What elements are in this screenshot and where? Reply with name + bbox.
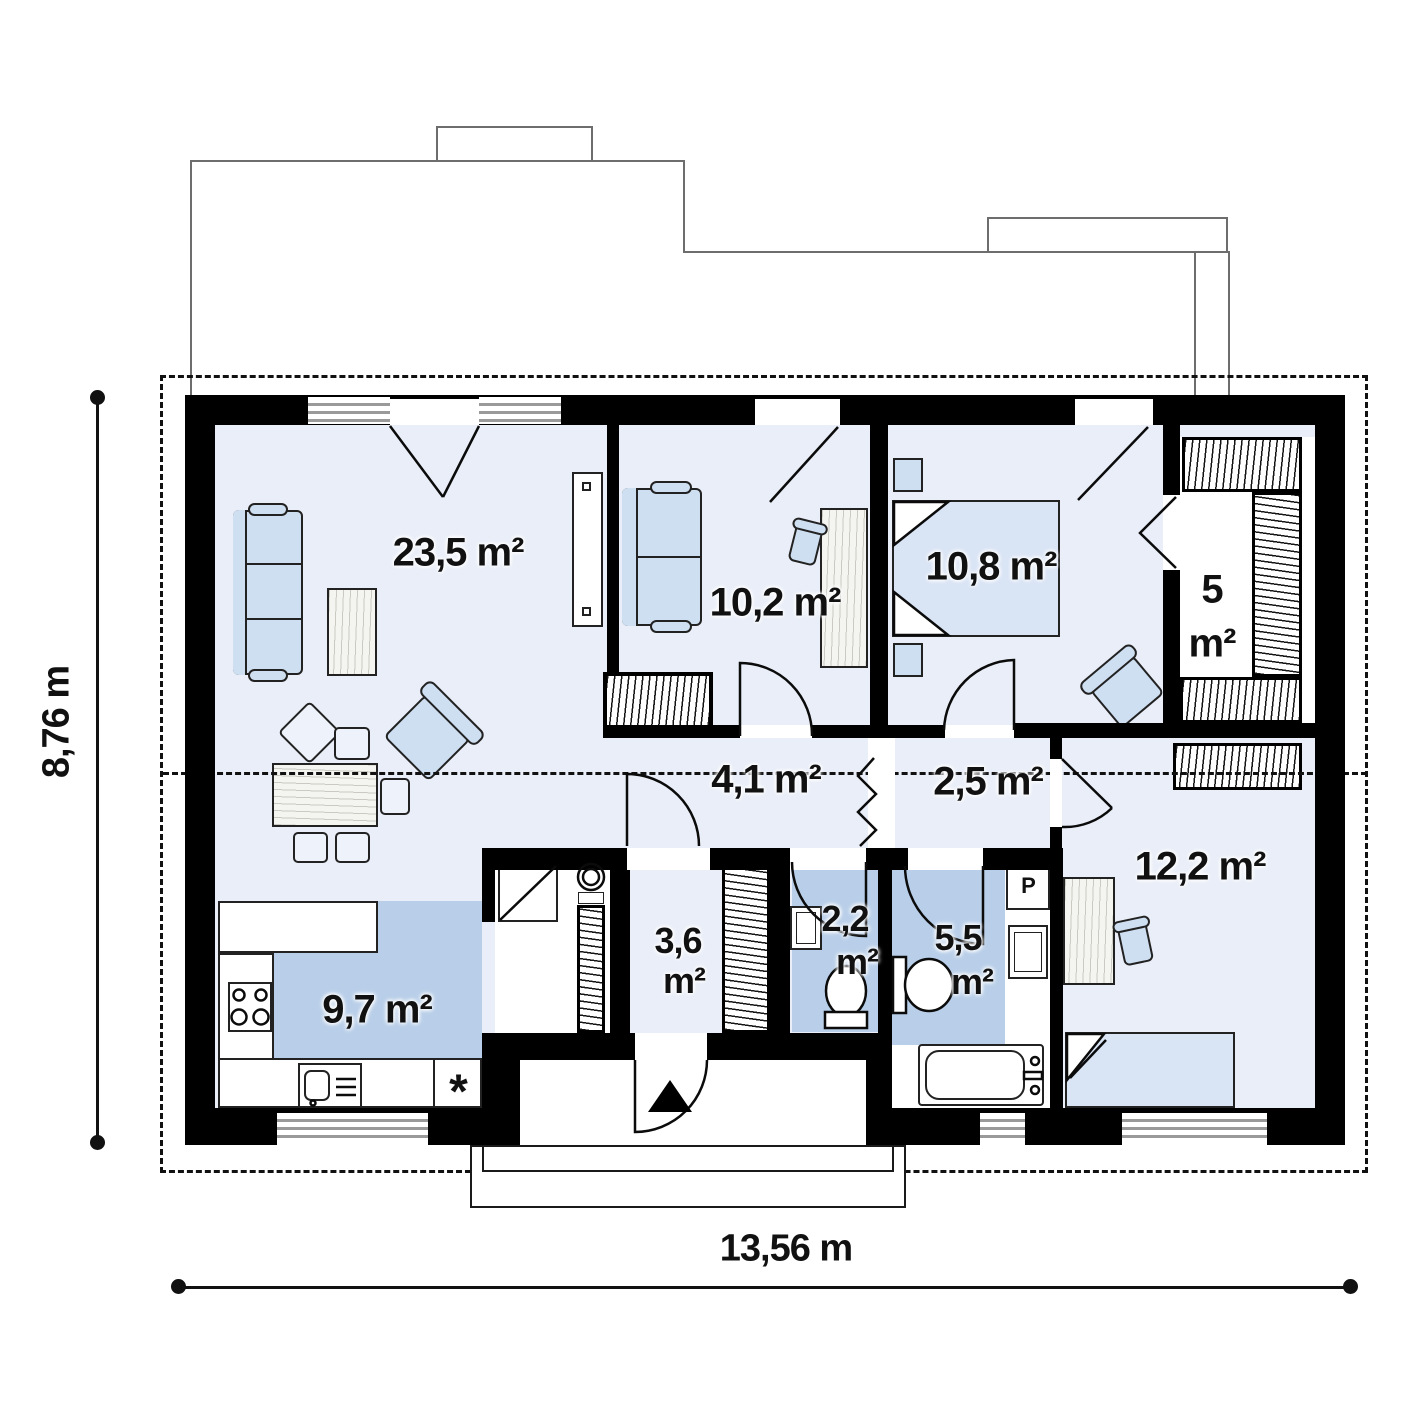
stove-burner	[256, 990, 267, 1001]
dish-rack-lines	[336, 1079, 356, 1095]
room-label-wc-unit: m²	[836, 941, 878, 983]
bed-pillow	[894, 592, 948, 635]
sink-drain	[311, 1101, 316, 1106]
room-label-wc: 2,2	[821, 898, 868, 940]
room-label-bathroom-unit: m²	[951, 961, 993, 1003]
room-label-kitchen: 9,7 m²	[322, 988, 432, 1033]
toilet-tank	[825, 1012, 867, 1028]
open-window-sash	[770, 427, 838, 502]
room-label-wardrobe-unit: m²	[1189, 622, 1236, 667]
room-label-entry: 3,6	[654, 920, 701, 962]
floor-plan-canvas: 8,76 m 13,56 m *	[0, 0, 1403, 1406]
open-door-symbol	[390, 426, 479, 497]
room-label-bedroom: 10,8 m²	[926, 545, 1057, 590]
room-label-hall: 4,1 m²	[711, 758, 821, 803]
room-label-wardrobe: 5	[1201, 568, 1222, 613]
blanket-fold	[1067, 1034, 1104, 1080]
entrance-arrow-icon	[648, 1080, 692, 1112]
room-label-bathroom: 5,5	[934, 917, 981, 959]
tub-handle	[1024, 1072, 1042, 1079]
stove-burner	[234, 990, 245, 1001]
stove-burner	[254, 1010, 269, 1025]
room-label-entry-unit: m²	[663, 960, 705, 1002]
door-swing	[740, 663, 812, 736]
open-door-symbol	[1140, 497, 1176, 568]
door-swing	[1062, 759, 1112, 827]
shower-diagonal	[500, 866, 556, 920]
tub-faucet	[1031, 1086, 1039, 1094]
stove-burner	[232, 1010, 247, 1025]
tub-faucet	[1031, 1057, 1039, 1065]
open-window-sash	[1078, 427, 1148, 500]
plan-stroke-overlay	[0, 0, 1403, 1406]
room-label-cabinet: 12,2 m²	[1135, 845, 1266, 890]
door-swing	[627, 774, 699, 846]
bed-pillow	[894, 502, 948, 545]
toilet-bowl	[905, 959, 953, 1011]
room-label-corridor: 2,5 m²	[933, 760, 1043, 805]
door-swing	[944, 660, 1014, 730]
room-label-living: 23,5 m²	[393, 531, 524, 576]
room-label-lounge: 10,2 m²	[710, 581, 841, 626]
accordion-door	[858, 758, 876, 846]
washing-machine-drum	[583, 869, 599, 885]
